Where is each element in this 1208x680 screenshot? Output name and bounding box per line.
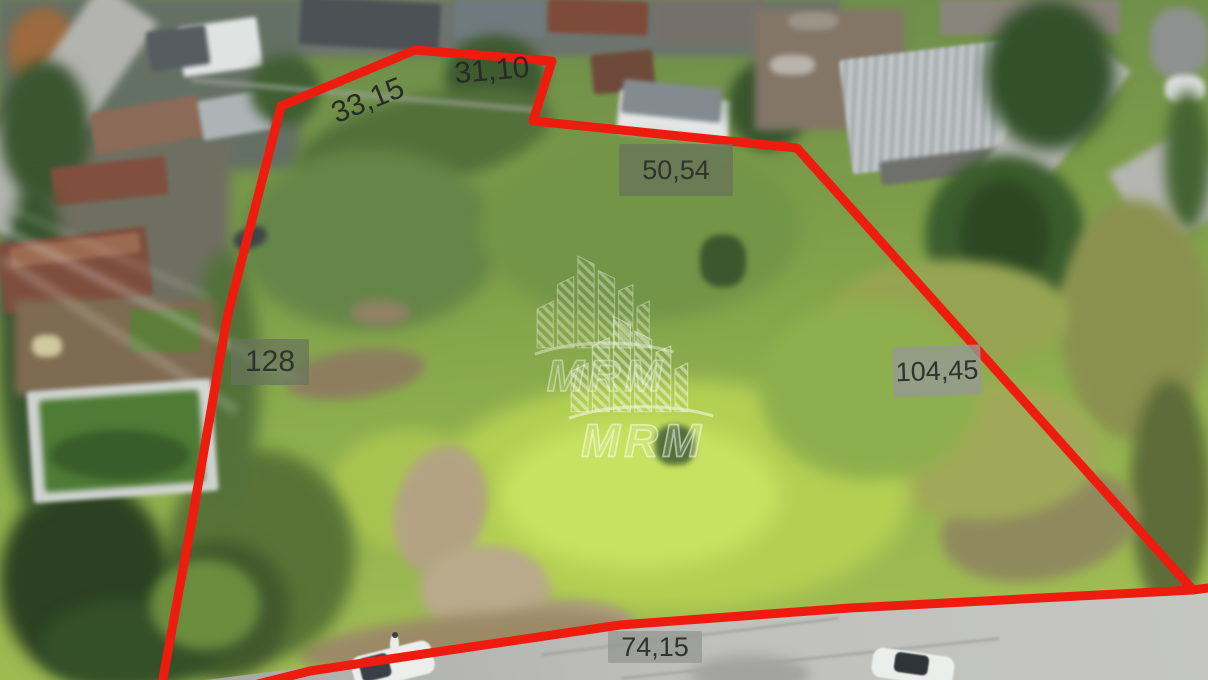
dirt-patch (350, 300, 410, 326)
tree-canopy (1165, 90, 1208, 230)
aerial-photo: MRM MRM 33,15 31,10 50,54 128 104,45 74,… (0, 0, 1208, 680)
building-icon (656, 346, 671, 412)
yard-object (32, 335, 62, 357)
bird-head (392, 632, 398, 638)
building-icon (635, 331, 652, 412)
grass-clump (150, 560, 260, 650)
house-roof-redbrown (547, 0, 648, 36)
mrm-watermark: MRM MRM (495, 242, 795, 472)
measurement-label-right: 104,45 (892, 344, 982, 397)
building-icon (537, 301, 553, 348)
building-icon (675, 363, 688, 412)
parked-car (770, 55, 815, 75)
building-icon (557, 277, 573, 348)
measurement-label-left: 128 (231, 339, 309, 385)
tree-canopy (985, 0, 1115, 150)
house-roof-dark (146, 24, 211, 72)
building-icon (571, 363, 588, 412)
car-windshield (893, 651, 929, 676)
watermark-text: MRM (581, 414, 705, 466)
parked-truck (788, 12, 838, 30)
measurement-label-top-right: 50,54 (619, 144, 733, 196)
house-roof-gray (455, 0, 545, 38)
building-icon (578, 256, 594, 348)
measurement-label-top-notch: 31,10 (453, 53, 530, 89)
car-windshield (358, 652, 393, 680)
measurement-label-bottom: 74,15 (608, 631, 702, 663)
building-icon (614, 316, 631, 411)
scrub (1130, 380, 1208, 610)
lawn-tree-shadow (50, 430, 190, 480)
house-roof-taupe (655, 0, 765, 45)
house-far-right (1150, 8, 1208, 78)
house-roof-charcoal (299, 0, 441, 52)
building-icon (592, 338, 609, 412)
building-icon (598, 270, 614, 348)
